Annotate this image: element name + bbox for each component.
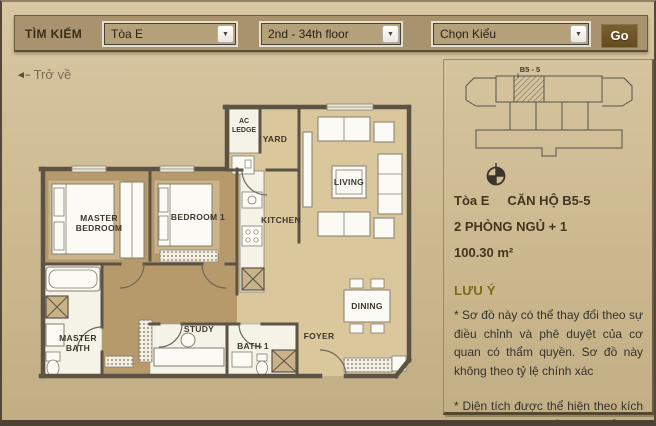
search-label: TÌM KIẾM xyxy=(25,27,82,41)
room-label-master-bedroom: BEDROOM xyxy=(76,223,123,233)
room-label-master-bedroom: MASTER xyxy=(80,213,118,223)
study-chair xyxy=(181,333,195,347)
sofa-right xyxy=(378,154,402,214)
unit-tag-label: B5 - 5 xyxy=(520,65,540,74)
unit-title: Tòa ECĂN HỘ B5-5 xyxy=(454,193,643,208)
room-label-bath1: BATH 1 xyxy=(237,341,269,351)
unit-name: CĂN HỘ B5-5 xyxy=(507,193,590,208)
dropdown-unit-type[interactable]: Chọn Kiểu ▼ xyxy=(433,23,589,45)
search-bar: TÌM KIẾM Tòa E ▼ 2nd - 34th floor ▼ Chọn… xyxy=(14,15,648,52)
room-label-study: STUDY xyxy=(184,324,214,334)
room-label-master-bath: MASTER xyxy=(59,333,97,343)
dropdown-floor-value: 2nd - 34th floor xyxy=(268,27,349,41)
room-label-yard: YARD xyxy=(263,134,288,144)
dropdown-unit-type-value: Chọn Kiểu xyxy=(440,27,496,41)
bedroom1-closet xyxy=(160,250,218,262)
chevron-down-icon[interactable]: ▼ xyxy=(570,25,587,43)
compass-icon xyxy=(484,160,508,188)
chevron-down-icon[interactable]: ▼ xyxy=(217,25,234,43)
unit-highlight-hatch xyxy=(514,76,544,102)
room-label-dining: DINING xyxy=(351,301,383,311)
building-footprint-diagram: B5 - 5 xyxy=(452,64,647,164)
page: TÌM KIẾM Tòa E ▼ 2nd - 34th floor ▼ Chọn… xyxy=(0,0,656,426)
unit-config: 2 PHÒNG NGỦ + 1 xyxy=(454,219,643,234)
room-label-master-bath: BATH xyxy=(66,343,90,353)
unit-area: 100.30 m² xyxy=(454,245,643,260)
note-paragraph: * Sơ đồ này có thể thay đổi theo sự điều… xyxy=(454,306,643,380)
back-link[interactable]: ◄--Trở về xyxy=(16,66,71,82)
unit-building: Tòa E xyxy=(454,193,489,208)
room-label-bedroom1: BEDROOM 1 xyxy=(171,212,225,222)
floor-plan: MASTER BEDROOM BEDROOM 1 KITCHEN YARD AC… xyxy=(27,97,447,402)
room-label-ac-ledge: LEDGE xyxy=(232,127,256,134)
room-label-ac-ledge: AC xyxy=(239,118,249,125)
info-panel: B5 - 5 Tòa ECĂN HỘ B5-5 2 PHÒNG NGỦ + 1 … xyxy=(443,59,654,415)
note-paragraph: * Diện tích được thể hiện theo kích thướ… xyxy=(454,397,643,426)
chevron-down-icon[interactable]: ▼ xyxy=(382,25,399,43)
room-label-living: LIVING xyxy=(334,177,364,187)
room-label-kitchen: KITCHEN xyxy=(261,215,301,225)
back-arrow-icon: ◄-- xyxy=(16,70,30,81)
go-button[interactable]: Go xyxy=(601,24,638,48)
tv-cabinet xyxy=(303,132,312,207)
notes-heading: LƯU Ý xyxy=(454,283,643,298)
back-link-label: Trở về xyxy=(34,67,72,82)
room-label-foyer: FOYER xyxy=(304,331,335,341)
dropdown-floor[interactable]: 2nd - 34th floor ▼ xyxy=(261,23,401,45)
study-desk xyxy=(154,348,224,366)
dropdown-building[interactable]: Tòa E ▼ xyxy=(104,23,236,45)
dropdown-building-value: Tòa E xyxy=(111,27,143,41)
